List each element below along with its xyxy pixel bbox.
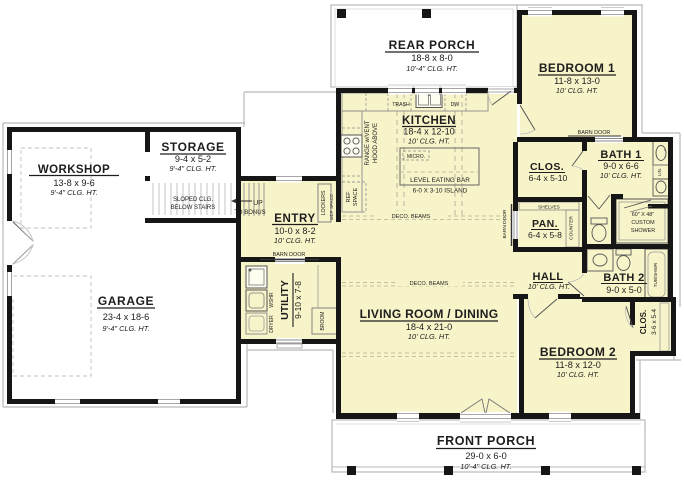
svg-text:GARAGE: GARAGE: [98, 294, 154, 308]
svg-text:BARN DOOR: BARN DOOR: [273, 252, 306, 258]
svg-text:29-0 x 6-0: 29-0 x 6-0: [465, 451, 506, 461]
svg-text:DRYER: DRYER: [269, 315, 275, 333]
svg-text:BELOW STAIRS: BELOW STAIRS: [171, 205, 216, 211]
svg-text:SPACE: SPACE: [353, 188, 359, 207]
svg-text:REF: REF: [346, 191, 352, 203]
svg-text:COUNTER: COUNTER: [569, 216, 575, 240]
svg-text:BATH 2: BATH 2: [603, 272, 644, 284]
svg-text:UTILITY: UTILITY: [279, 280, 291, 320]
svg-text:RANGE w/VENT: RANGE w/VENT: [365, 120, 371, 165]
svg-text:REAR PORCH: REAR PORCH: [389, 38, 476, 52]
svg-text:BARN DOOR: BARN DOOR: [578, 130, 611, 136]
svg-text:10'-4" CLG. HT.: 10'-4" CLG. HT.: [406, 64, 457, 73]
svg-text:10' CLG. HT.: 10' CLG. HT.: [528, 282, 570, 291]
svg-text:LIVING ROOM / DINING: LIVING ROOM / DINING: [360, 307, 499, 321]
svg-text:CUSTOM: CUSTOM: [631, 220, 655, 226]
svg-text:10' CLG. HT.: 10' CLG. HT.: [557, 370, 599, 379]
svg-text:6-4 x 5-10: 6-4 x 5-10: [529, 173, 568, 183]
svg-text:BATH 1: BATH 1: [600, 149, 641, 161]
svg-text:23-4 x 18-6: 23-4 x 18-6: [103, 312, 149, 322]
svg-text:11-8 x 13-0: 11-8 x 13-0: [554, 76, 600, 86]
svg-text:ENTRY: ENTRY: [274, 213, 316, 225]
svg-text:9'-4" CLG. HT.: 9'-4" CLG. HT.: [169, 164, 216, 173]
svg-text:KITCHEN: KITCHEN: [402, 115, 456, 127]
svg-text:LOCKERS: LOCKERS: [321, 190, 327, 215]
svg-text:9-10 x 7-8: 9-10 x 7-8: [293, 281, 303, 319]
svg-text:18-4 x 12-10: 18-4 x 12-10: [403, 127, 455, 137]
svg-text:SHELVES: SHELVES: [538, 205, 560, 211]
svg-text:TRASH: TRASH: [392, 102, 410, 108]
svg-text:10' CLG. HT.: 10' CLG. HT.: [408, 332, 450, 341]
svg-text:WORKSHOP: WORKSHOP: [38, 164, 110, 176]
svg-text:PAN.: PAN.: [532, 218, 558, 230]
svg-text:3-6 x 5-4: 3-6 x 5-4: [651, 309, 658, 335]
svg-text:11-8 x 12-0: 11-8 x 12-0: [555, 360, 601, 370]
svg-text:CLOS.: CLOS.: [639, 310, 648, 334]
svg-text:STORAGE: STORAGE: [161, 140, 224, 154]
svg-text:10' CLG. HT.: 10' CLG. HT.: [600, 171, 642, 180]
svg-text:9-4 x 5-2: 9-4 x 5-2: [175, 154, 211, 164]
svg-text:FRONT PORCH: FRONT PORCH: [437, 434, 535, 448]
svg-text:9'-4" CLG. HT.: 9'-4" CLG. HT.: [50, 188, 97, 197]
svg-text:CLOS.: CLOS.: [530, 161, 564, 173]
svg-text:18-4 x 21-0: 18-4 x 21-0: [406, 322, 452, 332]
svg-text:BROOM: BROOM: [320, 312, 326, 331]
svg-text:13-8 x 9-6: 13-8 x 9-6: [53, 178, 94, 188]
svg-text:10'-4" CLG. HT.: 10'-4" CLG. HT.: [460, 462, 511, 471]
svg-text:HOOD ABOVE: HOOD ABOVE: [373, 123, 379, 163]
svg-text:UP: UP: [253, 200, 263, 207]
svg-text:SHOWER: SHOWER: [631, 228, 655, 234]
svg-text:DECO. BEAMS: DECO. BEAMS: [392, 214, 431, 220]
svg-text:9'-4" CLG. HT.: 9'-4" CLG. HT.: [102, 324, 149, 333]
svg-text:9-0 x 6-6: 9-0 x 6-6: [603, 161, 639, 171]
svg-text:10' CLG. HT.: 10' CLG. HT.: [408, 137, 450, 146]
svg-text:MICRO.: MICRO.: [407, 154, 425, 160]
svg-text:WSHR: WSHR: [269, 292, 275, 308]
svg-text:6-0 X 3-10 ISLAND: 6-0 X 3-10 ISLAND: [413, 188, 468, 195]
svg-text:10-0 x 8-2: 10-0 x 8-2: [274, 226, 315, 236]
svg-text:6-4 x 5-8: 6-4 x 5-8: [528, 230, 562, 240]
svg-text:10' CLG. HT.: 10' CLG. HT.: [556, 86, 598, 95]
svg-text:18-8 x 8-0: 18-8 x 8-0: [411, 53, 452, 63]
svg-text:LIN.: LIN.: [657, 168, 662, 176]
svg-text:9-0 x 5-0: 9-0 x 5-0: [606, 285, 642, 295]
svg-text:MEP SPACE: MEP SPACE: [329, 194, 334, 220]
svg-text:BEDROOM 1: BEDROOM 1: [539, 61, 615, 75]
svg-text:DW: DW: [451, 102, 460, 108]
svg-text:60" X 48": 60" X 48": [632, 212, 654, 218]
svg-text:TUB/SHWR: TUB/SHWR: [653, 262, 658, 287]
svg-text:LEVEL EATING BAR: LEVEL EATING BAR: [410, 177, 470, 184]
svg-text:SLOPED CLG.: SLOPED CLG.: [173, 197, 213, 203]
svg-text:DECO. BEAMS: DECO. BEAMS: [410, 281, 449, 287]
svg-text:BEDROOM 2: BEDROOM 2: [540, 345, 616, 359]
svg-text:10' CLG. HT.: 10' CLG. HT.: [274, 236, 316, 245]
svg-text:BARN DOOR: BARN DOOR: [502, 209, 508, 239]
